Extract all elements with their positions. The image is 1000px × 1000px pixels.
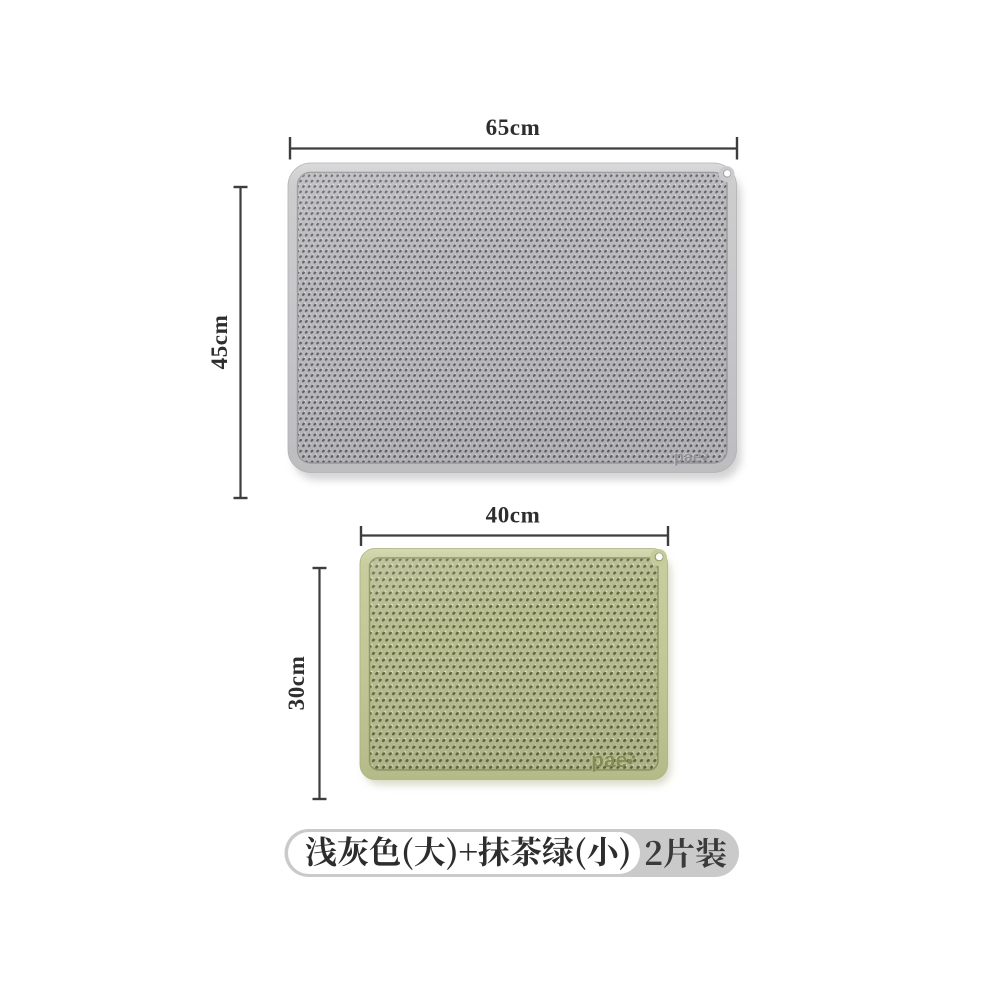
svg-text:pae: pae (591, 749, 627, 772)
svg-text:65cm: 65cm (486, 115, 541, 140)
svg-text:40cm: 40cm (486, 503, 541, 528)
svg-text:30cm: 30cm (284, 656, 309, 711)
svg-text:pae: pae (674, 449, 702, 466)
svg-text:45cm: 45cm (207, 315, 232, 370)
